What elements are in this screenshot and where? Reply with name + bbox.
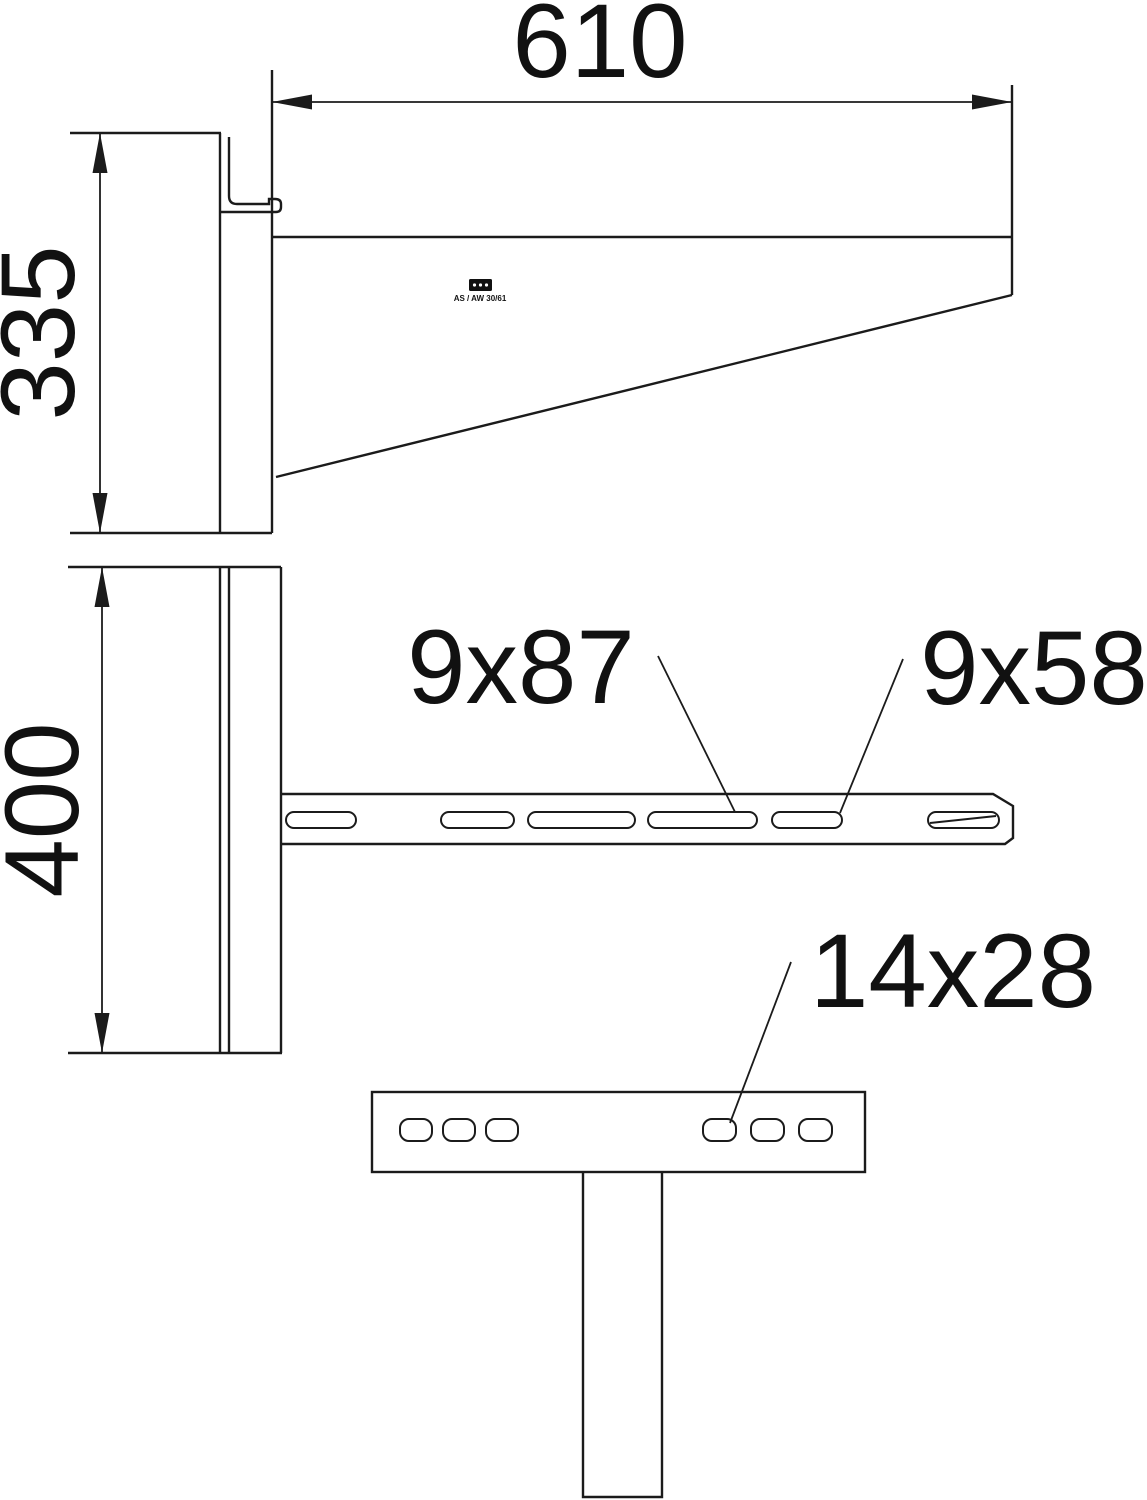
base-plate-outline [372,1092,865,1172]
arm-slot-6-section-line [930,816,996,823]
label-14x28: 14x28 [810,913,1096,1030]
dimension-610: 610 [272,0,1012,110]
arm-slot-3 [528,812,635,828]
obo-logo-dot [479,283,482,286]
leader-9x58 [840,659,903,813]
technical-drawing-page: AS / AW 30/61 610 335 400 [0,0,1147,1500]
stamp-type-text: AS / AW 30/61 [454,294,507,303]
base-stem [583,1172,662,1497]
dim-400-label: 400 [0,722,101,897]
dim-335-arrow-top [93,133,108,173]
arm-slot-2 [441,812,514,828]
dim-610-arrow-left [272,95,312,110]
base-view: 14x28 [372,913,1096,1497]
side-arm-bottom-diagonal [276,295,1012,477]
base-hole-2 [443,1119,475,1141]
leader-9x87 [658,656,735,812]
front-arm-outline [281,794,1013,844]
dim-335-label: 335 [0,245,97,420]
base-hole-5 [751,1119,784,1141]
leader-14x28 [730,962,791,1123]
slot-callouts: 9x87 9x58 [407,609,1147,813]
label-9x87: 9x87 [407,609,635,726]
obo-logo-dot [485,283,488,286]
arm-slot-1 [286,812,356,828]
arm-slot-5 [772,812,842,828]
dim-335-arrow-bottom [93,493,108,533]
dim-610-arrow-right [972,95,1012,110]
base-hole-6 [799,1119,832,1141]
label-9x58: 9x58 [920,610,1147,727]
dim-610-label: 610 [512,0,687,100]
dim-400-arrow-top [95,567,110,607]
arm-slot-4 [648,812,757,828]
dim-400-arrow-bottom [95,1013,110,1053]
dimension-400: 400 [0,567,110,1053]
base-hole-1 [400,1119,432,1141]
product-stamp: AS / AW 30/61 [454,279,507,303]
obo-logo-dot [473,283,476,286]
base-hole-3 [486,1119,518,1141]
bracket-drawing-canvas: AS / AW 30/61 610 335 400 [0,0,1147,1500]
side-view: AS / AW 30/61 [70,70,1012,533]
dimension-335: 335 [0,133,108,533]
